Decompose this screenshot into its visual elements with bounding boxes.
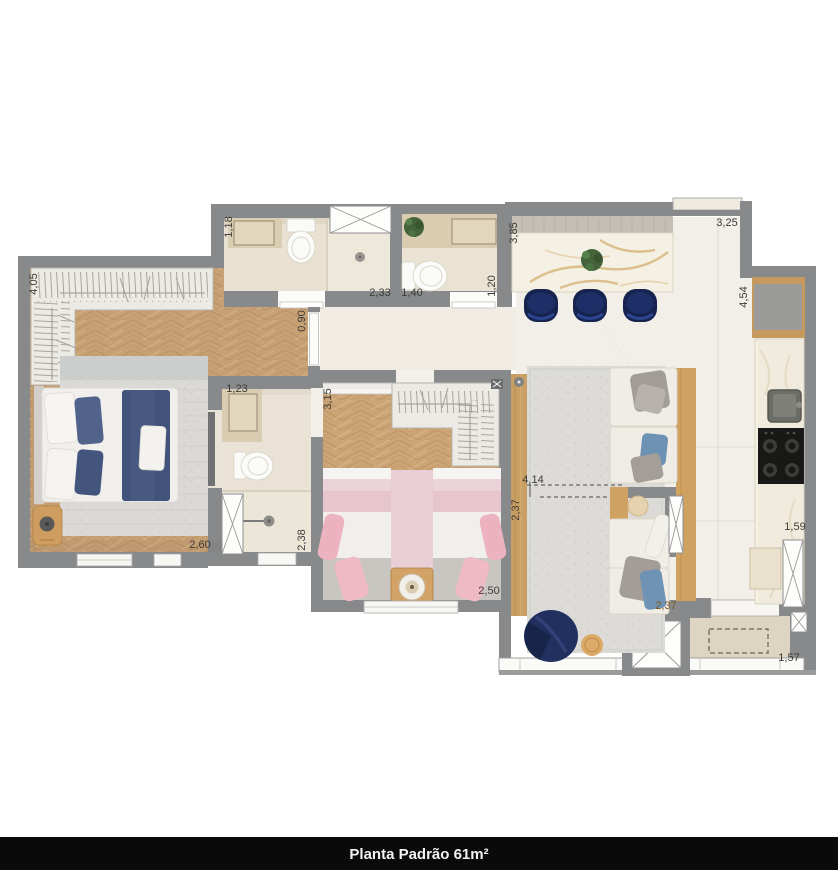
svg-text:Planta Padrão 61m²: Planta Padrão 61m² (349, 846, 488, 863)
svg-text:1,20: 1,20 (486, 275, 498, 296)
svg-text:1,57: 1,57 (778, 652, 799, 664)
svg-text:2,38: 2,38 (296, 529, 308, 550)
svg-text:2,37: 2,37 (510, 499, 522, 520)
svg-text:4,54: 4,54 (738, 286, 750, 307)
svg-text:2,50: 2,50 (478, 585, 499, 597)
svg-text:3,25: 3,25 (716, 217, 737, 229)
svg-text:3,15: 3,15 (322, 388, 334, 409)
svg-text:2,33: 2,33 (369, 287, 390, 299)
svg-text:0,90: 0,90 (296, 310, 308, 331)
svg-text:2,37: 2,37 (655, 600, 676, 612)
svg-text:4,14: 4,14 (522, 474, 543, 486)
svg-text:3,85: 3,85 (508, 222, 520, 243)
svg-text:1,23: 1,23 (226, 383, 247, 395)
svg-text:1,40: 1,40 (401, 287, 422, 299)
svg-text:4,05: 4,05 (28, 273, 40, 294)
svg-text:2,60: 2,60 (189, 539, 210, 551)
svg-text:1,18: 1,18 (223, 216, 235, 237)
svg-text:1,59: 1,59 (784, 521, 805, 533)
